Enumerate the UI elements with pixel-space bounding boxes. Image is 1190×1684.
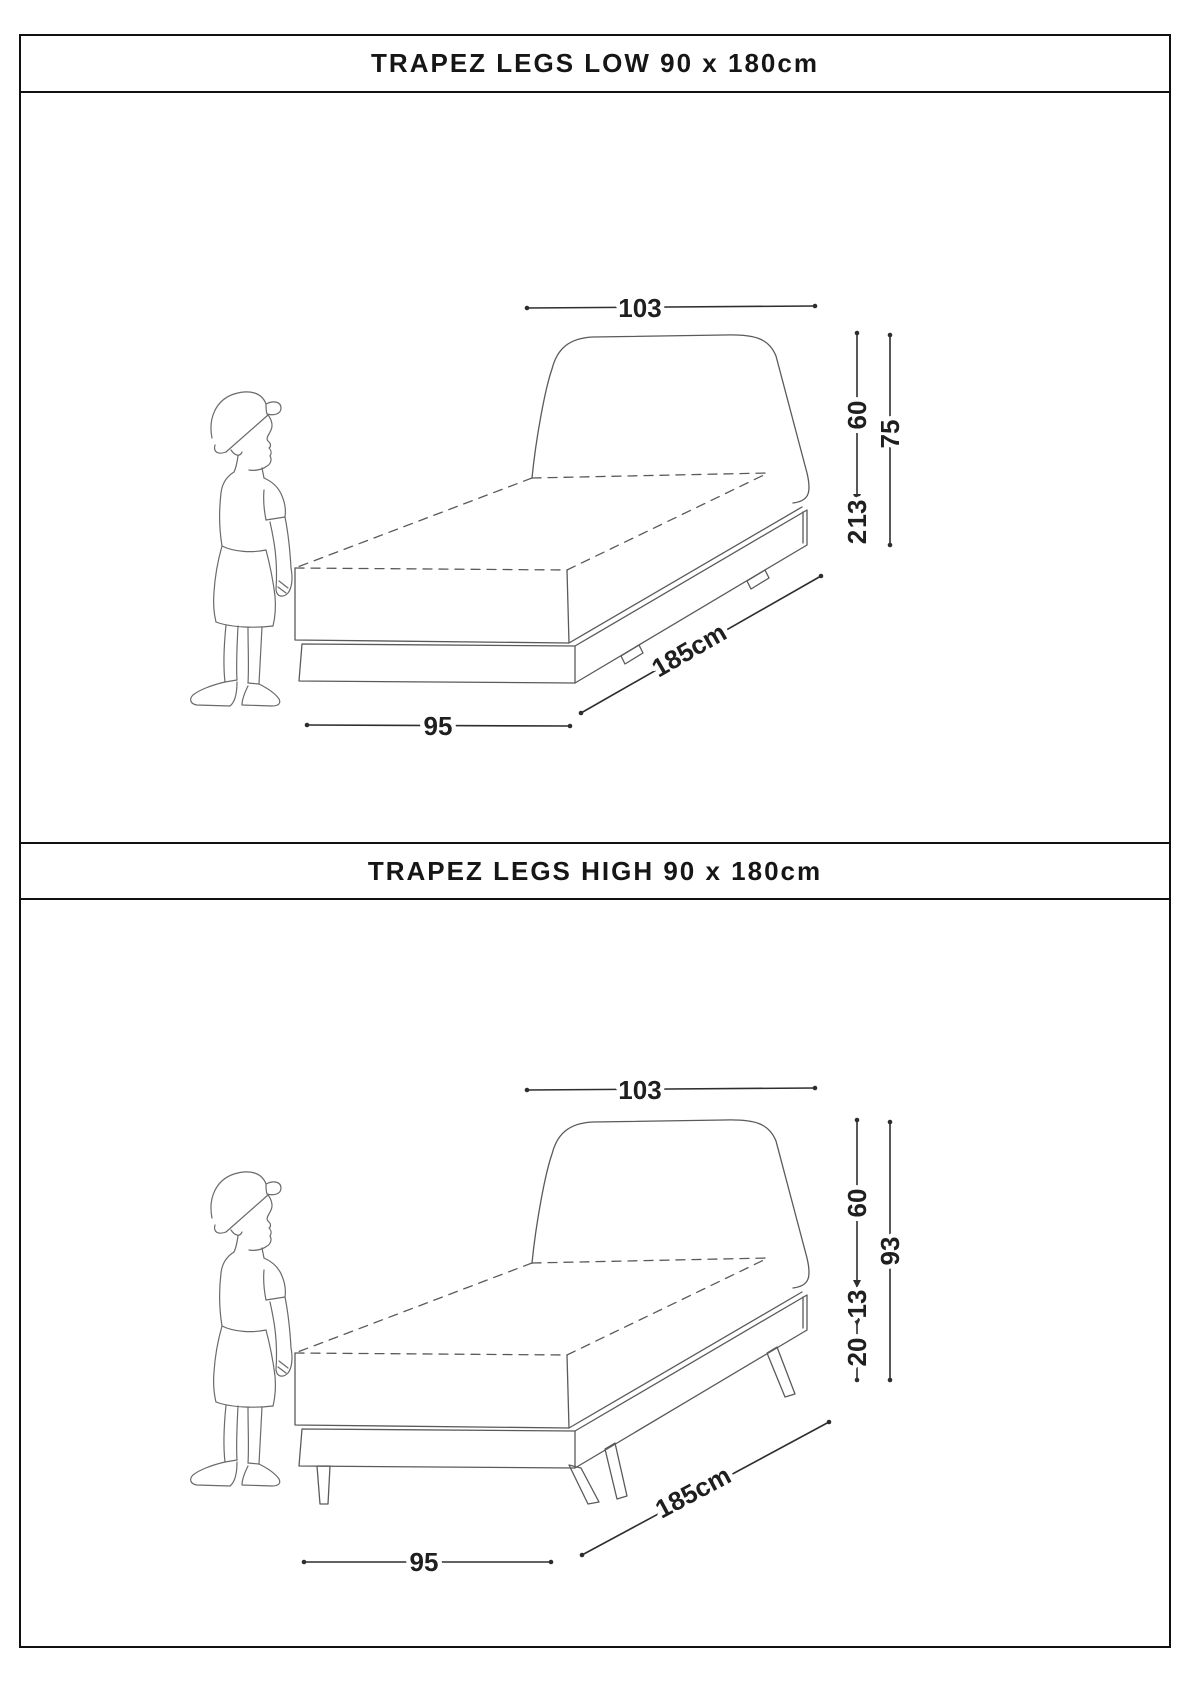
dim-headboard-width: 103: [618, 1075, 661, 1105]
panel-high-drawing: 103 60 13 20 93 185cm 95: [21, 900, 1169, 1646]
child-figure: [191, 1172, 292, 1486]
dim-length: 185cm: [646, 617, 731, 683]
panel-low-body: 103 60 13 2 75 185cm 95: [19, 91, 1171, 844]
dim-total-height: 93: [875, 1237, 905, 1266]
dim-frame-height: 13: [842, 500, 872, 529]
dim-headboard-above: 60: [842, 1189, 872, 1218]
panel-low-title-text: TRAPEZ LEGS LOW 90 x 180cm: [371, 48, 819, 79]
bed-high-drawing: [295, 1120, 809, 1504]
dim-front-width: 95: [410, 1547, 439, 1577]
dim-length: 185cm: [650, 1460, 736, 1525]
dim-front-width: 95: [424, 711, 453, 741]
dim-total-height: 75: [875, 420, 905, 449]
panel-high-body: 103 60 13 20 93 185cm 95: [19, 898, 1171, 1648]
dim-headboard-above: 60: [842, 401, 872, 430]
panel-low-drawing: 103 60 13 2 75 185cm 95: [21, 93, 1169, 842]
dimension-lines: [302, 1086, 893, 1565]
dimension-labels: 103 60 13 20 93 185cm 95: [410, 1075, 905, 1577]
dim-floor-clearance: 2: [842, 530, 872, 544]
panel-high-title: TRAPEZ LEGS HIGH 90 x 180cm: [19, 842, 1171, 900]
dimension-sheet: TRAPEZ LEGS LOW 90 x 180cm: [0, 0, 1190, 1684]
dim-floor-clearance: 20: [842, 1338, 872, 1367]
child-figure: [191, 392, 292, 706]
panel-low-title: TRAPEZ LEGS LOW 90 x 180cm: [19, 34, 1171, 93]
dim-headboard-width: 103: [618, 293, 661, 323]
dimension-labels: 103 60 13 2 75 185cm 95: [424, 293, 905, 741]
dim-frame-height: 13: [842, 1290, 872, 1319]
dimension-lines: [305, 304, 893, 729]
bed-low-drawing: [295, 335, 809, 683]
panel-high-title-text: TRAPEZ LEGS HIGH 90 x 180cm: [368, 856, 822, 887]
